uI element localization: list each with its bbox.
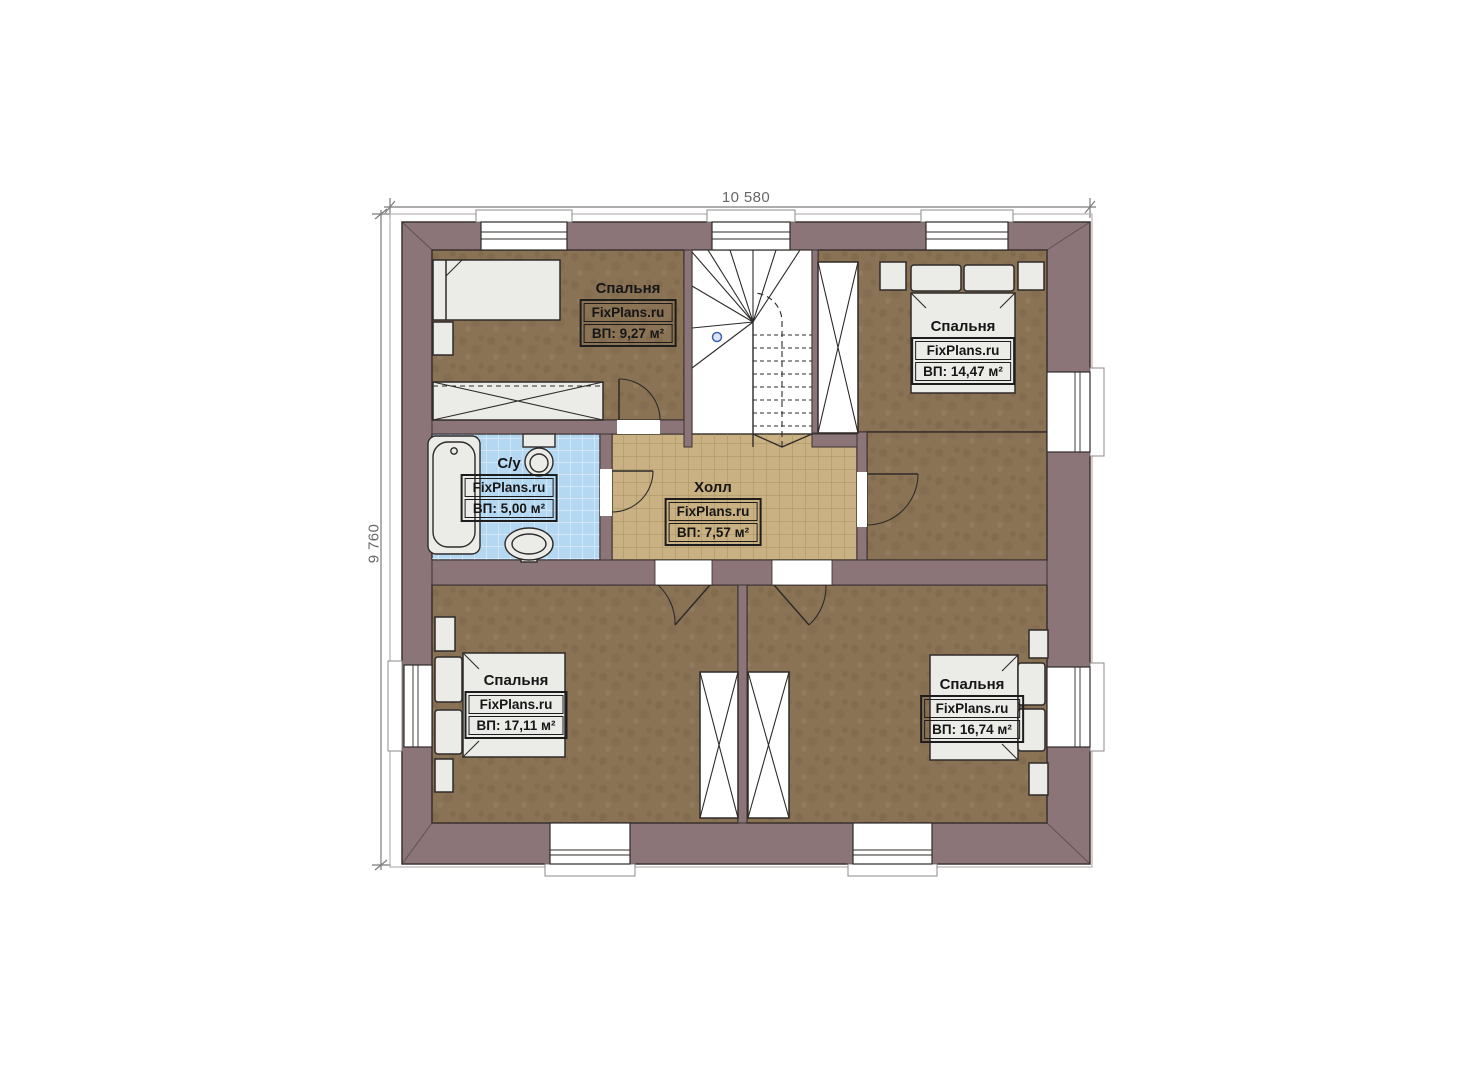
nightstand-icon — [433, 322, 453, 355]
room-info-box: FixPlans.ru ВП: 5,00 м² — [461, 474, 558, 522]
stair-marker-icon — [713, 333, 722, 342]
watermark: FixPlans.ru — [669, 502, 758, 521]
room-info-box: FixPlans.ru ВП: 14,47 м² — [911, 337, 1015, 385]
watermark: FixPlans.ru — [469, 695, 564, 714]
room-label-hall: Холл FixPlans.ru ВП: 7,57 м² — [665, 479, 762, 546]
dimension-height-label: 9 760 — [366, 504, 383, 584]
room-info-box: FixPlans.ru ВП: 9,27 м² — [580, 299, 677, 347]
room-label-bedroom-top-right: Спальня FixPlans.ru ВП: 14,47 м² — [911, 318, 1015, 385]
nightstand-icon — [1029, 763, 1048, 795]
watermark: FixPlans.ru — [915, 341, 1011, 360]
room-area: ВП: 9,27 м² — [584, 324, 673, 343]
floor-plan-canvas: 10 580 9 760 Спальня FixPlans.ru ВП: 9,2… — [0, 0, 1473, 1080]
room-area: ВП: 17,11 м² — [469, 716, 564, 735]
watermark: FixPlans.ru — [465, 478, 554, 497]
bed-icon-top-left — [433, 260, 560, 320]
closet-icon-bottom-right — [748, 672, 789, 818]
room-info-box: FixPlans.ru ВП: 16,74 м² — [920, 695, 1024, 743]
room-name: Холл — [665, 479, 762, 496]
nightstand-icon — [1029, 630, 1048, 658]
closet-icon-bottom-left — [700, 672, 738, 818]
watermark: FixPlans.ru — [924, 699, 1020, 718]
room-name: Спальня — [580, 280, 677, 297]
room-label-bedroom-bottom-right: Спальня FixPlans.ru ВП: 16,74 м² — [920, 676, 1024, 743]
room-name: Спальня — [920, 676, 1024, 693]
closet-icon-top — [818, 262, 858, 433]
room-area: ВП: 5,00 м² — [465, 499, 554, 518]
nightstand-icon — [435, 759, 453, 792]
room-name: С/у — [461, 455, 558, 472]
wardrobe-icon-top-left — [433, 382, 603, 420]
room-label-bedroom-bottom-left: Спальня FixPlans.ru ВП: 17,11 м² — [465, 672, 568, 739]
room-area: ВП: 14,47 м² — [915, 362, 1011, 381]
stairwell-floor — [692, 250, 812, 447]
room-info-box: FixPlans.ru ВП: 17,11 м² — [465, 691, 568, 739]
room-area: ВП: 16,74 м² — [924, 720, 1020, 739]
room-name: Спальня — [465, 672, 568, 689]
room-info-box: FixPlans.ru ВП: 7,57 м² — [665, 498, 762, 546]
nightstand-icon — [435, 617, 455, 651]
room-name: Спальня — [911, 318, 1015, 335]
watermark: FixPlans.ru — [584, 303, 673, 322]
room-area: ВП: 7,57 м² — [669, 523, 758, 542]
room-label-bathroom: С/у FixPlans.ru ВП: 5,00 м² — [461, 455, 558, 522]
room-label-bedroom-top-left: Спальня FixPlans.ru ВП: 9,27 м² — [580, 280, 677, 347]
dimension-width-label: 10 580 — [722, 189, 770, 206]
